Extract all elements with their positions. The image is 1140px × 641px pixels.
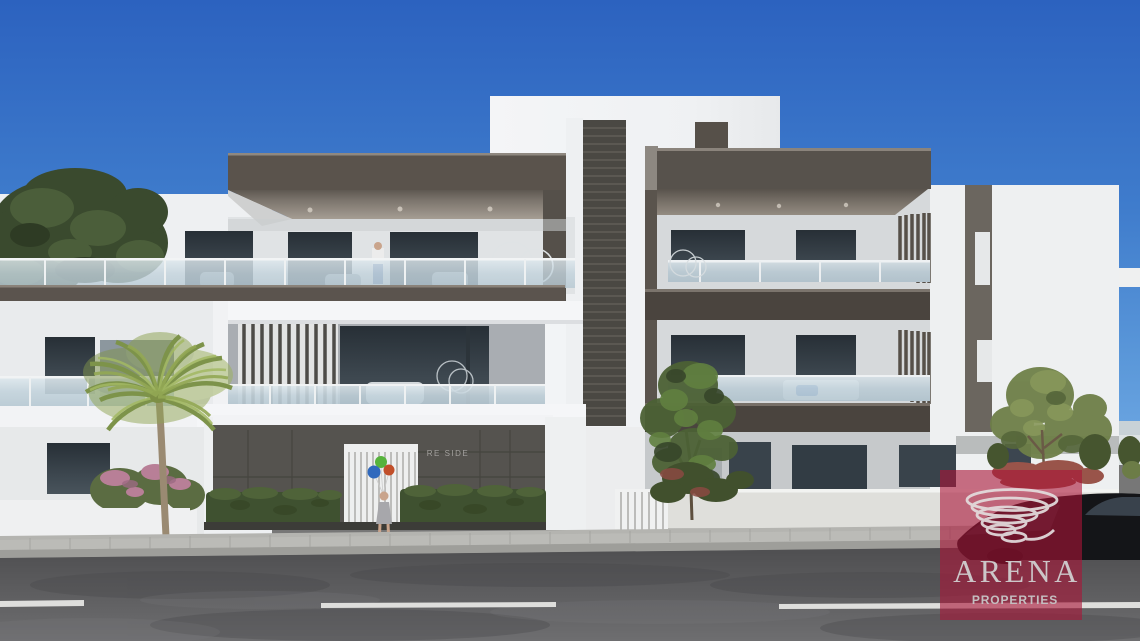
svg-text:PROPERTIES: PROPERTIES: [972, 593, 1058, 607]
svg-text:RE SIDE: RE SIDE: [427, 449, 470, 458]
svg-text:ARENA: ARENA: [953, 553, 1081, 589]
